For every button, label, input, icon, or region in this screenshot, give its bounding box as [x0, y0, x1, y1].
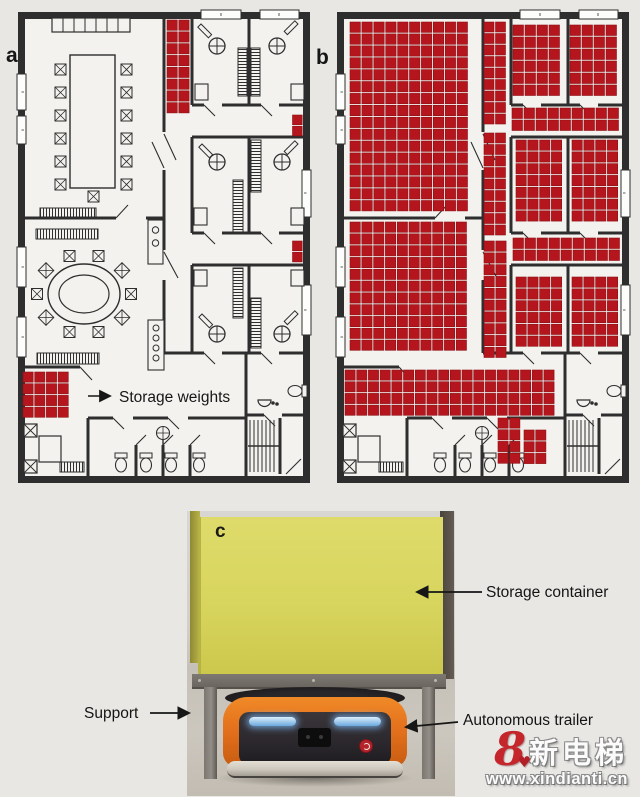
- storage-weight-cell: [549, 49, 560, 60]
- storage-weight-cell: [551, 187, 561, 197]
- storage-weight-cell: [496, 191, 506, 201]
- storage-weight-cell: [433, 246, 443, 256]
- storage-weight-cell: [484, 22, 494, 32]
- storage-weight-cell: [525, 250, 536, 261]
- storage-weight-cell: [350, 58, 360, 68]
- storage-weight-cell: [445, 34, 455, 44]
- storage-weight-cell: [350, 316, 360, 326]
- storage-weight-cell: [421, 46, 431, 56]
- storage-weight-cell: [516, 324, 526, 334]
- storage-weight-cell: [362, 281, 372, 291]
- storage-weight-cell: [498, 453, 508, 463]
- storage-weight-cell: [179, 67, 189, 77]
- storage-weight-cell: [532, 393, 542, 403]
- storage-weight-cell: [444, 246, 454, 256]
- storage-weight-cell: [167, 67, 177, 77]
- storage-weight-cell: [524, 442, 534, 452]
- storage-weight-cell: [167, 91, 177, 101]
- storage-weight-cell: [484, 241, 494, 251]
- storage-weight-cell: [516, 312, 526, 322]
- storage-weight-cell: [398, 70, 408, 80]
- storage-weight-cell: [570, 37, 581, 48]
- storage-container-box: c: [198, 517, 443, 675]
- storage-weight-cell: [607, 301, 617, 311]
- storage-weight-cell: [386, 189, 396, 199]
- storage-weight-cell: [551, 312, 561, 322]
- storage-weight-cell: [374, 105, 384, 115]
- storage-weight-cell: [398, 141, 408, 151]
- storage-weight-cell: [433, 117, 443, 127]
- storage-weight-cell: [521, 382, 531, 392]
- storage-weight-cell: [572, 164, 582, 174]
- storage-weight-cell: [570, 73, 581, 84]
- storage-weight-cell: [350, 22, 360, 32]
- storage-weight-cell: [350, 201, 360, 211]
- storage-weight-cell: [374, 46, 384, 56]
- storage-weight-cell: [537, 85, 548, 96]
- storage-weight-cell: [35, 384, 45, 394]
- storage-weight-cell: [484, 179, 494, 189]
- storage-weight-cell: [421, 34, 431, 44]
- storage-weight-cell: [525, 238, 536, 249]
- storage-weight-cell: [496, 288, 506, 298]
- storage-weight-cell: [582, 37, 593, 48]
- storage-weight-cell: [537, 37, 548, 48]
- storage-weight-cell: [582, 25, 593, 36]
- storage-weight-cell: [409, 293, 419, 303]
- storage-weight-cell: [606, 49, 617, 60]
- storage-weight-cell: [350, 153, 360, 163]
- storage-weight-cell: [572, 108, 583, 119]
- storage-weight-cell: [496, 22, 506, 32]
- storage-weight-cell: [409, 328, 419, 338]
- storage-weight-cell: [167, 103, 177, 113]
- storage-weight-cell: [548, 120, 559, 131]
- storage-weight-cell: [498, 430, 508, 440]
- storage-weight-cell: [433, 129, 443, 139]
- storage-weight-cell: [551, 336, 561, 346]
- storage-weight-cell: [362, 46, 372, 56]
- storage-weight-cell: [350, 129, 360, 139]
- storage-weight-cell: [374, 22, 384, 32]
- storage-weight-cell: [570, 85, 581, 96]
- storage-weight-cell: [496, 179, 506, 189]
- storage-weight-cell: [374, 189, 384, 199]
- storage-weight-cell: [594, 25, 605, 36]
- storage-weight-cell: [484, 347, 494, 357]
- storage-weight-cell: [462, 370, 472, 380]
- storage-weight-cell: [536, 430, 546, 440]
- storage-weight-cell: [596, 140, 606, 150]
- storage-weight-cell: [362, 257, 372, 267]
- storage-weight-cell: [444, 269, 454, 279]
- storage-weight-cell: [513, 238, 524, 249]
- storage-weight-cell: [496, 276, 506, 286]
- storage-weight-cell: [385, 293, 395, 303]
- storage-weight-cell: [509, 393, 519, 403]
- figure-canvas: a b Storage weights c Storage container …: [0, 0, 640, 797]
- storage-weight-cell: [167, 20, 177, 30]
- storage-weight-cell: [350, 165, 360, 175]
- storage-weight-cell: [457, 58, 467, 68]
- storage-weight-cell: [484, 191, 494, 201]
- storage-weight-cell: [398, 105, 408, 115]
- storage-weight-cell: [433, 234, 443, 244]
- storage-weight-cell: [362, 117, 372, 127]
- storage-weight-cell: [510, 453, 520, 463]
- storage-weight-cell: [444, 328, 454, 338]
- storage-weight-cell: [386, 58, 396, 68]
- storage-weight-cell: [404, 393, 414, 403]
- storage-weight-cell: [474, 393, 484, 403]
- storage-weight-cell: [410, 46, 420, 56]
- panel-c-photo: c: [187, 511, 455, 796]
- storage-weight-cell: [484, 312, 494, 322]
- storage-weight-cell: [392, 405, 402, 415]
- storage-weight-cell: [433, 340, 443, 350]
- storage-weight-cell: [362, 58, 372, 68]
- storage-weight-cell: [368, 393, 378, 403]
- storage-weight-cell: [606, 37, 617, 48]
- storage-weight-cell: [484, 145, 494, 155]
- storage-weight-cell: [456, 269, 466, 279]
- storage-weight-cell: [596, 187, 606, 197]
- storage-weight-cell: [398, 82, 408, 92]
- storage-weight-cell: [421, 70, 431, 80]
- storage-weight-cell: [528, 277, 538, 287]
- storage-weight-cell: [450, 405, 460, 415]
- storage-weight-cell: [474, 405, 484, 415]
- storage-weight-cell: [509, 382, 519, 392]
- storage-weight-cell: [496, 34, 506, 44]
- storage-weight-cell: [350, 269, 360, 279]
- storage-weight-cell: [540, 164, 550, 174]
- storage-weight-cell: [544, 370, 554, 380]
- storage-weight-cell: [513, 73, 524, 84]
- panel-b-label: b: [316, 46, 329, 69]
- storage-weight-cell: [540, 277, 550, 287]
- storage-weight-cell: [496, 103, 506, 113]
- storage-weight-cell: [596, 152, 606, 162]
- storage-weight-cell: [439, 405, 449, 415]
- storage-weight-cell: [362, 269, 372, 279]
- storage-weight-cell: [46, 395, 56, 405]
- storage-weight-cell: [570, 61, 581, 72]
- storage-weight-cell: [525, 37, 536, 48]
- storage-weight-cell: [607, 152, 617, 162]
- storage-weight-cell: [597, 250, 608, 261]
- storage-weight-cell: [410, 117, 420, 127]
- storage-weight-cell: [596, 120, 607, 131]
- storage-weight-cell: [572, 120, 583, 131]
- storage-weight-cell: [457, 22, 467, 32]
- storage-weight-cell: [607, 187, 617, 197]
- storage-weight-cell: [427, 370, 437, 380]
- storage-weight-cell: [456, 257, 466, 267]
- storage-weight-cell: [444, 293, 454, 303]
- storage-weight-cell: [392, 370, 402, 380]
- storage-weight-cell: [584, 277, 594, 287]
- storage-weight-cell: [421, 82, 431, 92]
- storage-weight-cell: [457, 82, 467, 92]
- support-leg-left: [204, 687, 217, 779]
- storage-weight-cell: [536, 120, 547, 131]
- storage-weight-cell: [398, 165, 408, 175]
- storage-weight-cell: [374, 246, 384, 256]
- storage-weight-cell: [433, 82, 443, 92]
- storage-weight-cell: [445, 93, 455, 103]
- storage-weight-cell: [528, 164, 538, 174]
- storage-weight-cell: [409, 257, 419, 267]
- storage-weight-cell: [512, 108, 523, 119]
- bolt: [312, 679, 315, 682]
- storage-weight-cell: [540, 211, 550, 221]
- storage-weight-cell: [415, 393, 425, 403]
- storage-weight-cell: [457, 129, 467, 139]
- storage-weight-cell: [582, 73, 593, 84]
- storage-weight-cell: [362, 305, 372, 315]
- storage-weight-cell: [594, 37, 605, 48]
- storage-weight-cell: [607, 336, 617, 346]
- storage-weight-cell: [596, 301, 606, 311]
- storage-weight-cell: [582, 61, 593, 72]
- heart-icon: ♥: [518, 756, 531, 768]
- storage-weight-cell: [585, 238, 596, 249]
- storage-weight-cell: [521, 405, 531, 415]
- storage-weight-cell: [410, 177, 420, 187]
- storage-weight-cell: [537, 250, 548, 261]
- storage-weight-cell: [350, 82, 360, 92]
- storage-weight-cell: [551, 324, 561, 334]
- storage-weight-cell: [450, 393, 460, 403]
- storage-weight-cell: [513, 25, 524, 36]
- storage-weight-cell: [293, 115, 303, 125]
- storage-weight-cell: [350, 222, 360, 232]
- storage-weight-cell: [572, 289, 582, 299]
- storage-weight-cell: [524, 120, 535, 131]
- storage-weight-cell: [496, 312, 506, 322]
- storage-weight-cell: [362, 93, 372, 103]
- storage-weight-cell: [421, 22, 431, 32]
- storage-weight-cell: [570, 49, 581, 60]
- storage-weight-cell: [582, 49, 593, 60]
- storage-weight-cell: [584, 175, 594, 185]
- storage-weight-cell: [513, 37, 524, 48]
- storage-weight-cell: [516, 199, 526, 209]
- storage-weight-cell: [560, 120, 571, 131]
- storage-weight-cell: [380, 382, 390, 392]
- storage-weight-cell: [540, 152, 550, 162]
- storage-weight-cell: [513, 61, 524, 72]
- storage-weight-cell: [496, 225, 506, 235]
- storage-weight-cell: [560, 108, 571, 119]
- storage-weight-cell: [606, 85, 617, 96]
- storage-weight-cell: [409, 222, 419, 232]
- storage-weight-cell: [398, 117, 408, 127]
- storage-weight-cell: [427, 382, 437, 392]
- storage-weight-cell: [496, 241, 506, 251]
- storage-weight-cell: [398, 177, 408, 187]
- storage-weight-cell: [536, 442, 546, 452]
- storage-weight-cell: [362, 340, 372, 350]
- storage-weight-cell: [496, 202, 506, 212]
- storage-weight-cell: [484, 300, 494, 310]
- panel-c-label: c: [215, 521, 226, 543]
- storage-weight-cell: [584, 289, 594, 299]
- storage-weight-cell: [398, 93, 408, 103]
- storage-weight-cell: [374, 93, 384, 103]
- robot-headlight-left: [249, 717, 296, 726]
- storage-weight-cell: [350, 340, 360, 350]
- storage-weight-cell: [397, 246, 407, 256]
- storage-weight-cell: [584, 211, 594, 221]
- storage-weight-cell: [524, 430, 534, 440]
- storage-weight-cell: [23, 395, 33, 405]
- storage-weight-cell: [445, 105, 455, 115]
- storage-weight-cell: [362, 201, 372, 211]
- storage-weight-cell: [392, 382, 402, 392]
- storage-weight-cell: [397, 340, 407, 350]
- storage-weight-cell: [167, 44, 177, 54]
- storage-weight-cell: [532, 405, 542, 415]
- storage-weight-cell: [572, 140, 582, 150]
- storage-weight-cell: [528, 301, 538, 311]
- storage-weight-cell: [497, 393, 507, 403]
- storage-weight-cell: [484, 276, 494, 286]
- storage-weight-cell: [445, 189, 455, 199]
- storage-weight-cell: [516, 140, 526, 150]
- storage-weight-cell: [362, 316, 372, 326]
- storage-weight-cell: [350, 46, 360, 56]
- storage-weight-cell: [540, 175, 550, 185]
- storage-weight-cell: [433, 222, 443, 232]
- storage-weight-cell: [540, 187, 550, 197]
- storage-weight-cell: [374, 340, 384, 350]
- storage-weight-cell: [513, 49, 524, 60]
- storage-weight-cell: [551, 301, 561, 311]
- storage-weight-cell: [362, 82, 372, 92]
- storage-weight-cell: [536, 108, 547, 119]
- storage-weight-cell: [374, 222, 384, 232]
- storage-weight-cell: [386, 105, 396, 115]
- bolt: [434, 679, 437, 682]
- storage-weight-cell: [548, 108, 559, 119]
- storage-weight-cell: [179, 55, 189, 65]
- storage-weight-cell: [433, 93, 443, 103]
- storage-weight-cell: [573, 238, 584, 249]
- storage-weight-cell: [179, 91, 189, 101]
- storage-weight-cell: [572, 187, 582, 197]
- storage-weight-cell: [607, 312, 617, 322]
- watermark-brand: 新电梯: [529, 739, 628, 768]
- storage-weight-cell: [374, 70, 384, 80]
- storage-weight-cell: [549, 238, 560, 249]
- storage-weight-cell: [516, 164, 526, 174]
- storage-weight-cell: [582, 85, 593, 96]
- storage-weight-cell: [397, 328, 407, 338]
- storage-weight-cell: [350, 328, 360, 338]
- storage-weight-cell: [386, 93, 396, 103]
- storage-weight-cell: [513, 85, 524, 96]
- storage-weight-cell: [596, 289, 606, 299]
- storage-weight-cell: [457, 141, 467, 151]
- storage-weight-cell: [167, 32, 177, 42]
- storage-weight-cell: [433, 201, 443, 211]
- storage-weight-cell: [496, 45, 506, 55]
- storage-weight-cell: [415, 382, 425, 392]
- storage-weight-cell: [404, 405, 414, 415]
- storage-weight-cell: [572, 211, 582, 221]
- storage-weight-cell: [484, 265, 494, 275]
- storage-weight-cell: [606, 73, 617, 84]
- storage-weight-cell: [498, 441, 508, 451]
- storage-weight-cell: [484, 34, 494, 44]
- storage-weight-cell: [421, 141, 431, 151]
- storage-weight-cell: [345, 370, 355, 380]
- storage-weight-cell: [456, 293, 466, 303]
- storage-weight-cell: [421, 165, 431, 175]
- storage-weight-cell: [362, 141, 372, 151]
- storage-weight-cell: [609, 250, 620, 261]
- storage-weight-cell: [410, 153, 420, 163]
- storage-weight-cell: [374, 316, 384, 326]
- storage-weight-cell: [496, 347, 506, 357]
- storage-weight-cell: [385, 316, 395, 326]
- storage-weight-cell: [528, 199, 538, 209]
- storage-weight-cell: [433, 293, 443, 303]
- storage-weight-cell: [516, 336, 526, 346]
- storage-weight-cell: [457, 153, 467, 163]
- storage-weight-cell: [385, 328, 395, 338]
- storage-weight-cell: [350, 293, 360, 303]
- storage-weight-cell: [594, 61, 605, 72]
- storage-weight-cell: [444, 305, 454, 315]
- storage-weight-cell: [385, 305, 395, 315]
- storage-weight-cell: [374, 153, 384, 163]
- storage-weight-cell: [594, 73, 605, 84]
- storage-weight-cell: [179, 20, 189, 30]
- storage-weight-cell: [456, 234, 466, 244]
- storage-weight-cell: [421, 177, 431, 187]
- storage-weight-cell: [551, 175, 561, 185]
- storage-weight-cell: [362, 70, 372, 80]
- storage-weight-cell: [484, 253, 494, 263]
- storage-weight-cell: [497, 370, 507, 380]
- storage-weight-cell: [485, 370, 495, 380]
- storage-weight-cell: [496, 114, 506, 124]
- storage-weight-cell: [397, 281, 407, 291]
- storage-weight-cell: [537, 49, 548, 60]
- storage-weight-cell: [528, 312, 538, 322]
- storage-weight-cell: [433, 165, 443, 175]
- storage-weight-cell: [484, 103, 494, 113]
- storage-weight-cell: [167, 55, 177, 65]
- storage-weight-cell: [456, 340, 466, 350]
- storage-weight-cell: [561, 238, 572, 249]
- storage-weight-cell: [357, 405, 367, 415]
- storage-weight-cell: [350, 70, 360, 80]
- storage-weight-cell: [540, 312, 550, 322]
- storage-weight-cell: [525, 85, 536, 96]
- storage-weight-cell: [524, 453, 534, 463]
- storage-weight-cell: [509, 405, 519, 415]
- storage-weight-cell: [537, 25, 548, 36]
- storage-weight-cell: [536, 453, 546, 463]
- storage-weight-cell: [497, 382, 507, 392]
- storage-weight-cell: [362, 293, 372, 303]
- storage-weight-cell: [485, 405, 495, 415]
- storage-weight-cell: [58, 372, 68, 382]
